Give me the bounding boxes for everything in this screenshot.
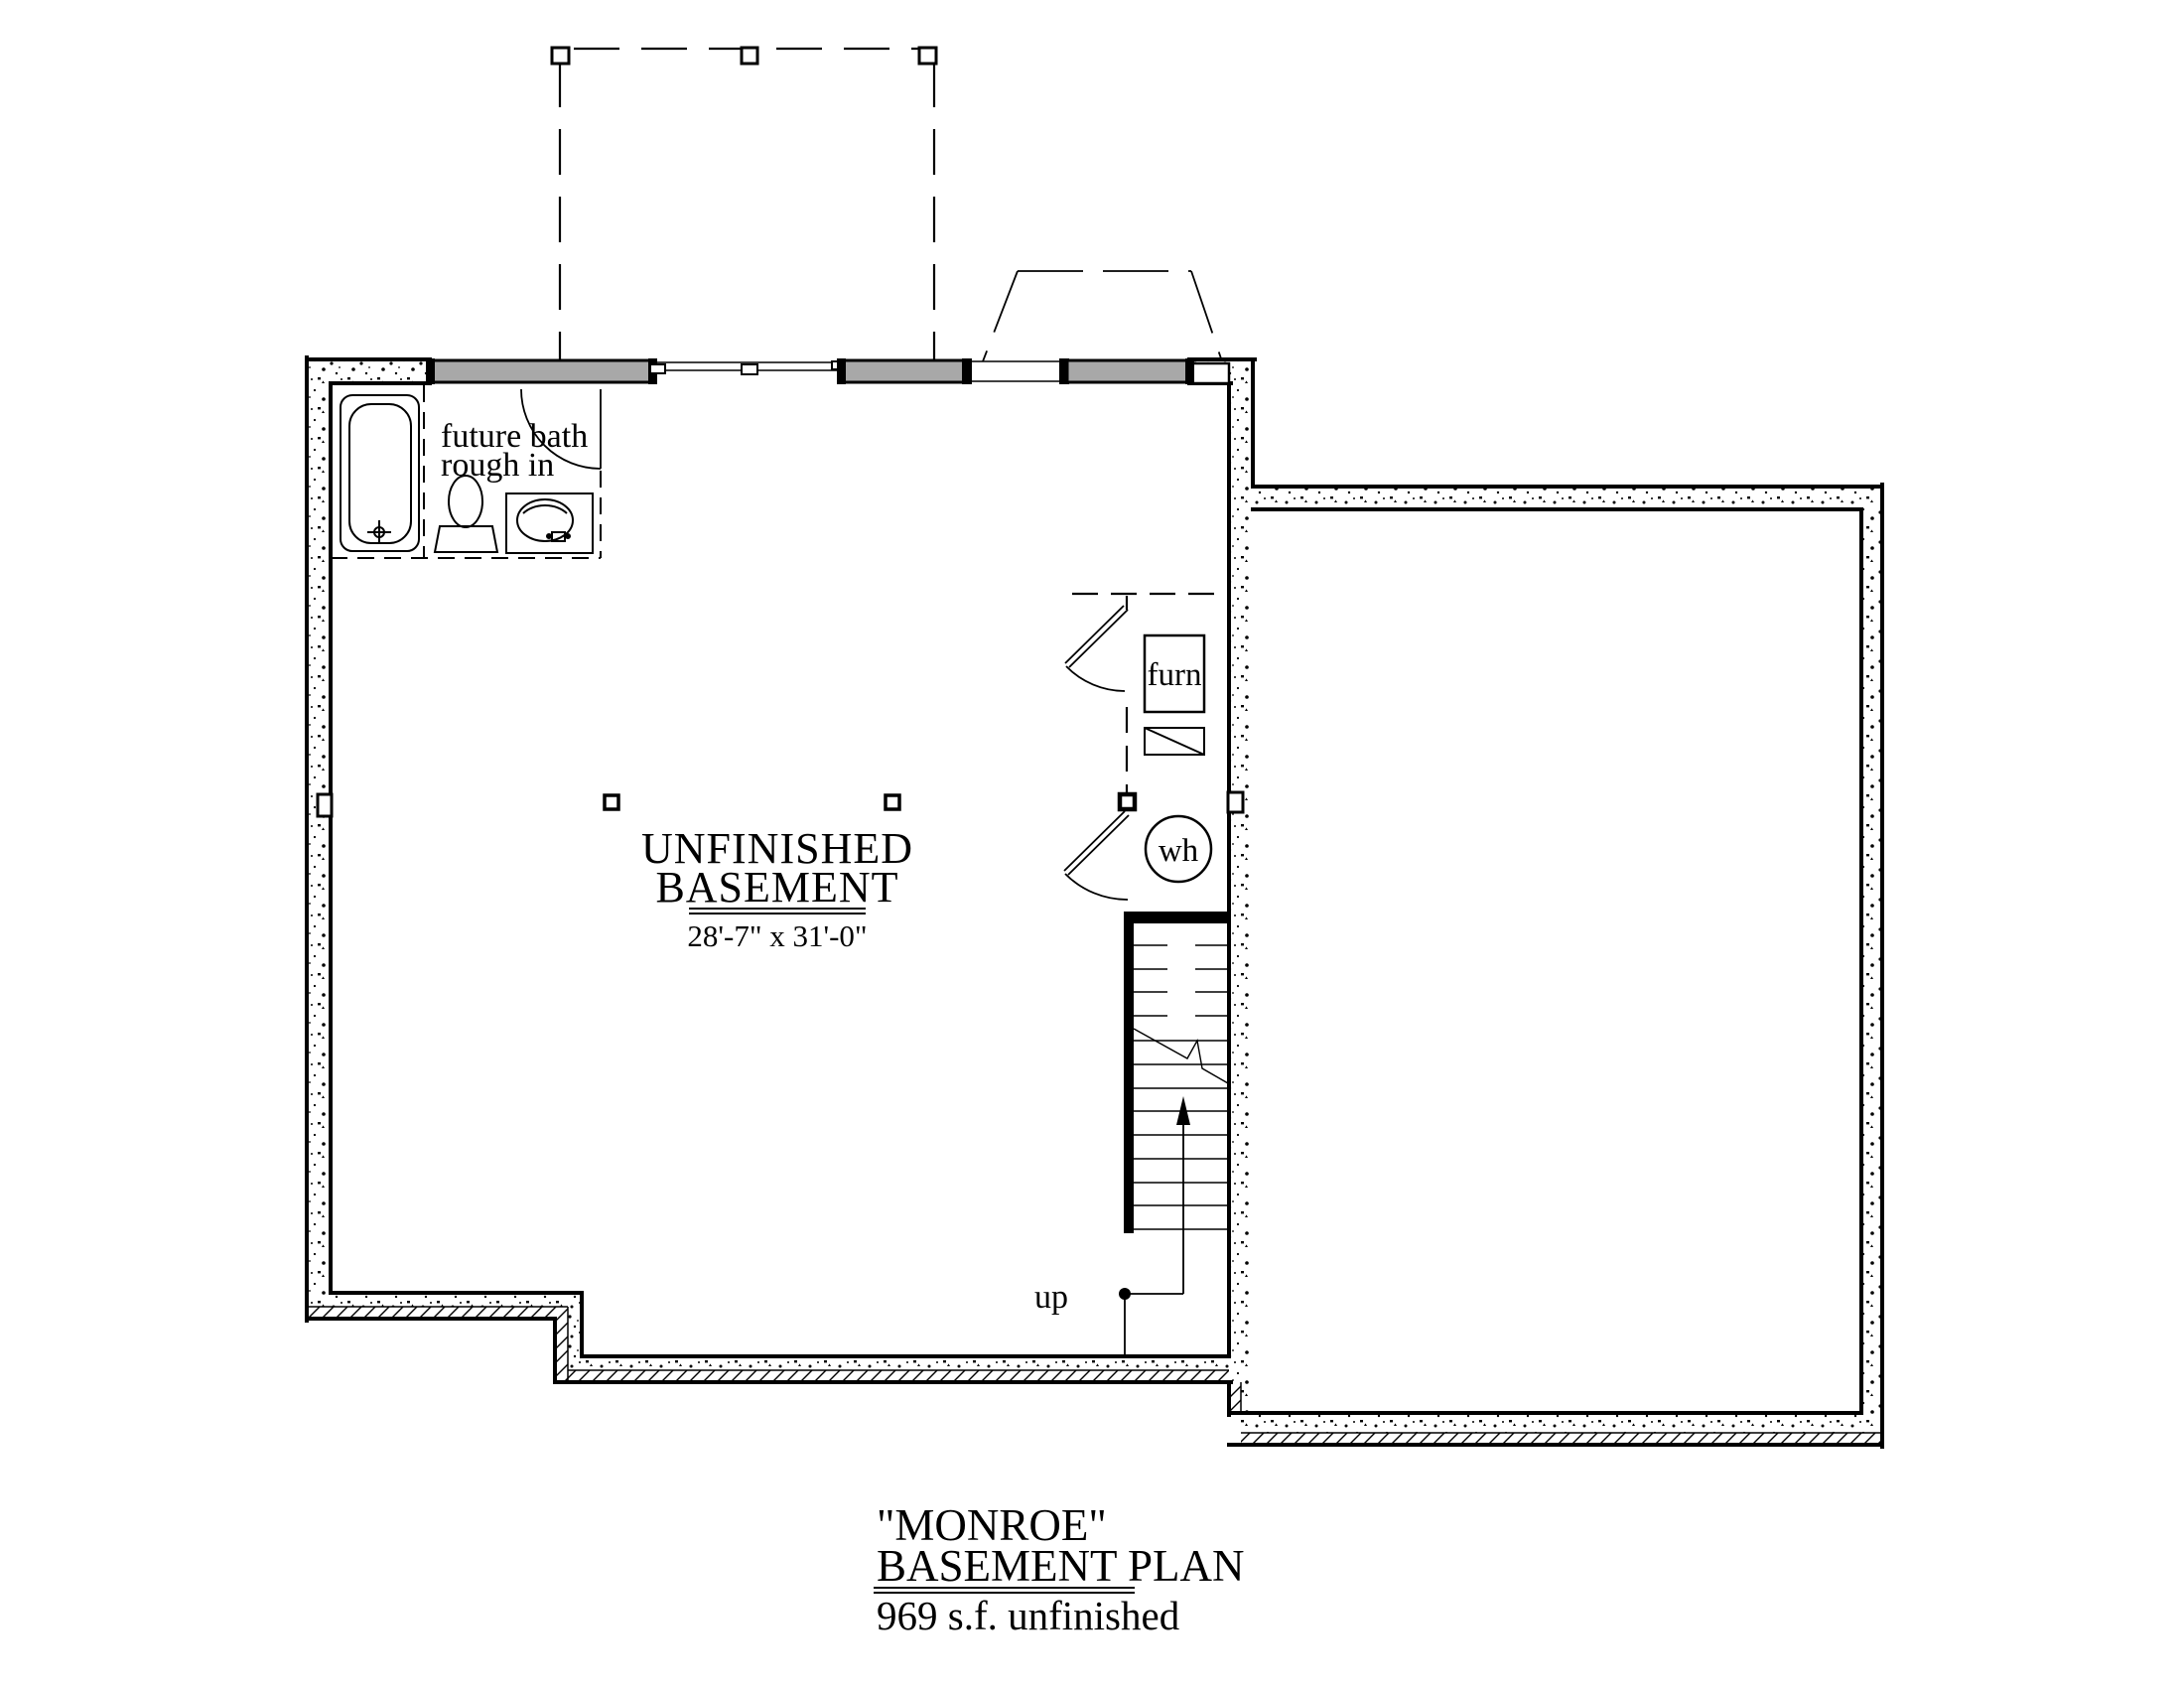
deck-post-left xyxy=(552,48,569,64)
wall-edges xyxy=(307,357,1882,1447)
framed-wall-posts xyxy=(650,361,845,374)
window-well-outline xyxy=(983,271,1222,361)
future-bath: future bath rough in xyxy=(331,385,601,558)
concrete-walls xyxy=(307,359,1882,1445)
deck-post-right xyxy=(919,48,936,64)
lally-columns xyxy=(605,795,899,809)
corner-notch xyxy=(1191,363,1229,383)
toilet xyxy=(435,476,497,552)
wall-opening xyxy=(966,361,1067,381)
stairs-up-label: up xyxy=(1034,1279,1068,1316)
room-dimensions: 28'-7" x 31'-0" xyxy=(687,918,867,953)
plan-type: BASEMENT PLAN xyxy=(877,1541,1244,1591)
sink-vanity xyxy=(506,493,593,553)
deck-above-outline xyxy=(560,49,934,359)
room-name-line2: BASEMENT xyxy=(655,863,898,912)
title-block: "MONROE" BASEMENT PLAN 969 s.f. unfinish… xyxy=(874,1500,1244,1638)
equipment-pad xyxy=(1145,728,1204,755)
basement-plan-drawing: future bath rough in furn wh xyxy=(0,0,2184,1688)
column-post-1 xyxy=(605,795,618,809)
beam-pocket-right-wall xyxy=(1228,792,1243,812)
drawing-sheet: future bath rough in furn wh xyxy=(0,0,2184,1688)
beam-pocket-left-wall xyxy=(318,794,332,816)
furnace-label: furn xyxy=(1148,657,1202,693)
main-room-label: UNFINISHED BASEMENT 28'-7" x 31'-0" xyxy=(641,824,913,953)
top-wall-openings xyxy=(426,358,1194,384)
bathtub xyxy=(341,395,419,551)
future-bath-label-2: rough in xyxy=(441,447,554,484)
stair-treads xyxy=(1134,945,1228,1229)
stair-break-line xyxy=(1134,1029,1228,1083)
stair-side-wall xyxy=(1124,912,1134,1233)
stairs: up xyxy=(1034,912,1228,1354)
mechanical-area: furn wh xyxy=(1064,594,1228,900)
basement-window-a xyxy=(430,360,653,382)
column-post-2 xyxy=(886,795,899,809)
basement-window-b xyxy=(841,360,966,382)
closet-post xyxy=(1120,794,1135,809)
stair-header xyxy=(1124,912,1228,923)
closet-door-upper xyxy=(1065,606,1128,691)
up-leader-dot xyxy=(1119,1288,1131,1300)
area-note: 969 s.f. unfinished xyxy=(877,1593,1179,1638)
closet-door-lower xyxy=(1064,811,1129,900)
deck-post-middle xyxy=(742,48,757,64)
basement-window-c xyxy=(1067,360,1189,382)
water-heater-label: wh xyxy=(1159,833,1199,869)
deck-posts xyxy=(552,48,936,64)
